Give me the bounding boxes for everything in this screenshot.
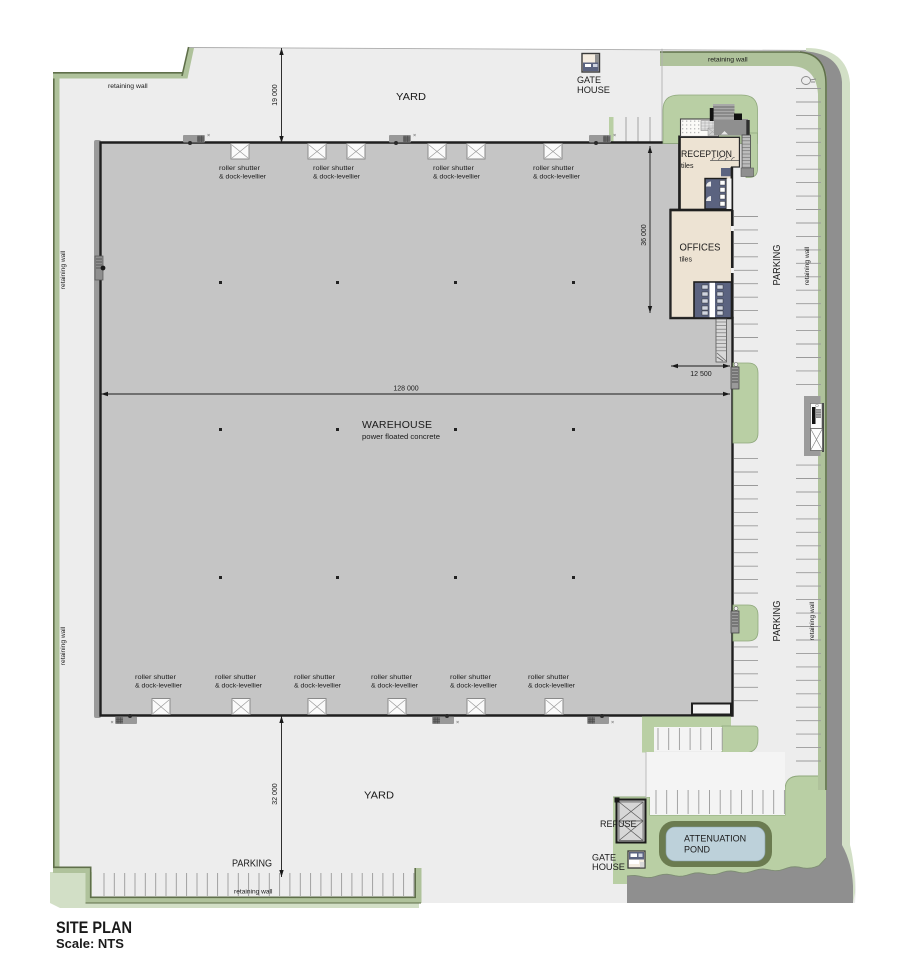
svg-text:REFUSE: REFUSE xyxy=(600,819,637,829)
svg-text:HOUSE: HOUSE xyxy=(577,85,610,95)
svg-text:retaining wall: retaining wall xyxy=(234,889,273,896)
svg-text:12 500: 12 500 xyxy=(690,371,712,378)
svg-text:& dock-levellier: & dock-levellier xyxy=(528,683,576,690)
svg-text:retaining wall: retaining wall xyxy=(60,250,67,289)
svg-text:& dock-levellier: & dock-levellier xyxy=(215,683,263,690)
svg-text:roller shutter: roller shutter xyxy=(371,674,413,681)
svg-text:& dock-levellier: & dock-levellier xyxy=(371,683,419,690)
svg-text:roller shutter: roller shutter xyxy=(215,674,257,681)
svg-text:PARKING: PARKING xyxy=(772,600,783,641)
svg-text:power floated concrete: power floated concrete xyxy=(362,434,440,441)
svg-text:19 000: 19 000 xyxy=(272,84,279,106)
svg-text:retaining wall: retaining wall xyxy=(809,601,816,640)
svg-text:HOUSE: HOUSE xyxy=(592,862,625,872)
svg-text:& dock-levellier: & dock-levellier xyxy=(294,683,342,690)
svg-text:& dock-levellier: & dock-levellier xyxy=(533,174,581,181)
svg-text:roller shutter: roller shutter xyxy=(219,165,261,172)
svg-text:retaining wall: retaining wall xyxy=(708,57,748,64)
svg-text:OFFICES: OFFICES xyxy=(680,243,721,254)
svg-text:& dock-levellier: & dock-levellier xyxy=(313,174,361,181)
svg-text:& dock-levellier: & dock-levellier xyxy=(433,174,481,181)
svg-text:tiles: tiles xyxy=(680,257,693,264)
svg-text:ATTENUATION: ATTENUATION xyxy=(684,834,746,844)
svg-text:POND: POND xyxy=(684,845,711,855)
svg-text:& dock-levellier: & dock-levellier xyxy=(450,683,498,690)
svg-text:RECEPTION: RECEPTION xyxy=(681,149,732,159)
svg-text:YARD: YARD xyxy=(364,791,394,802)
svg-text:36 000: 36 000 xyxy=(641,224,648,246)
svg-text:& dock-levellier: & dock-levellier xyxy=(219,174,267,181)
svg-text:128 000: 128 000 xyxy=(393,386,418,393)
svg-text:PARKING: PARKING xyxy=(232,859,272,870)
svg-text:roller shutter: roller shutter xyxy=(135,674,177,681)
svg-text:PARKING: PARKING xyxy=(772,244,783,285)
svg-text:roller shutter: roller shutter xyxy=(433,165,475,172)
svg-text:roller shutter: roller shutter xyxy=(533,165,575,172)
svg-text:32 000: 32 000 xyxy=(272,783,279,805)
svg-text:Scale: NTS: Scale: NTS xyxy=(56,936,124,951)
svg-text:retaining wall: retaining wall xyxy=(60,626,67,665)
svg-text:GATE: GATE xyxy=(577,75,601,85)
svg-text:roller shutter: roller shutter xyxy=(450,674,492,681)
svg-text:retaining wall: retaining wall xyxy=(804,246,811,285)
svg-text:& dock-levellier: & dock-levellier xyxy=(135,683,183,690)
svg-text:roller shutter: roller shutter xyxy=(294,674,336,681)
svg-text:SITE PLAN: SITE PLAN xyxy=(56,918,132,937)
svg-text:GATE: GATE xyxy=(592,853,616,863)
svg-text:YARD: YARD xyxy=(396,92,426,103)
svg-text:roller shutter: roller shutter xyxy=(313,165,355,172)
svg-text:tiles: tiles xyxy=(681,163,694,170)
svg-text:retaining wall: retaining wall xyxy=(108,83,148,90)
svg-text:WAREHOUSE: WAREHOUSE xyxy=(362,419,432,431)
svg-text:roller shutter: roller shutter xyxy=(528,674,570,681)
